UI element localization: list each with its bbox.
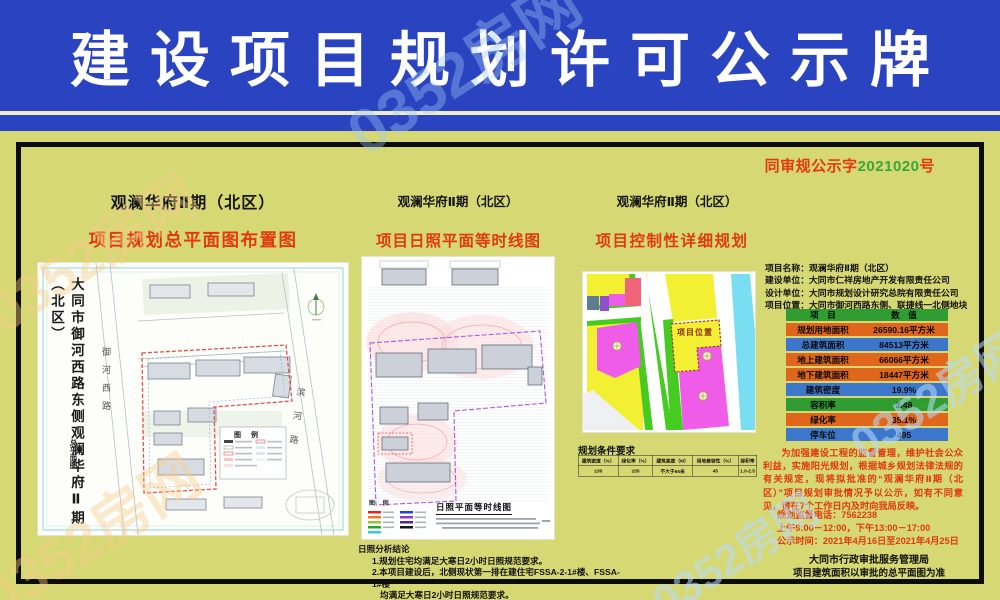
sunshine-legend-title: 图 例 (369, 498, 392, 507)
conditions-value: ≤30 (578, 466, 618, 477)
conditions-header: 建筑高度（M） (653, 455, 693, 466)
project-site-label: 项目位置 (677, 327, 713, 338)
table-row: 容积率 2.48 (786, 398, 948, 411)
board-title: 建设项目规划许可公示牌 (50, 12, 950, 99)
row-value: 2.48 (860, 400, 948, 410)
right-drawing-title: 项目控制性详细规划 (572, 229, 772, 251)
left-drawing-title: 项目规划总平面图布置图 (33, 227, 353, 252)
row-value: 18447平方米 (860, 369, 948, 381)
info-line-designer: 设计单位：大同市规划设计研究总院有限责任公司 (765, 287, 970, 299)
parcel-red (625, 278, 641, 306)
row-label: 容积率 (786, 399, 860, 411)
conditions-value: ≥35 (618, 466, 652, 477)
table-row: 停车位 495 (786, 428, 948, 441)
conditions-header: 绿化率（%） (618, 455, 652, 466)
row-label: 规划用地面积 (786, 324, 860, 336)
footer-note: 项目建筑面积以审批的总平面图为准 (763, 565, 975, 579)
plan-side-subtitle: 总平面图 (68, 439, 79, 469)
office-hours: 上午9:00－12:00，下午13:00－17:00 (777, 520, 977, 534)
conditions-header-row: 建筑密度（%） 绿化率（%） 建筑高度（M） 用地兼容性（%） 容积率 (578, 455, 757, 466)
sunshine-plan-graphic (362, 257, 554, 539)
parcel-slate (587, 296, 599, 310)
conditions-header: 用地兼容性（%） (692, 455, 738, 466)
analysis-line-1: 1.规划住宅均满足大寒日2小时日照规范要求。 (358, 556, 628, 568)
table-row: 地上建筑面积 66066平方米 (786, 353, 948, 366)
project-info: 项目名称：观澜华府Ⅱ期（北区） 建设单位：大同市仁祥房地产开发有限责任公司 设计… (765, 262, 970, 311)
sunshine-analysis: 日照分析结论 1.规划住宅均满足大寒日2小时日照规范要求。 2.本项目建设后，北… (358, 544, 628, 600)
public-notice-paragraph: 为加强建设工程的监督管理，维护社会公众利益，实施阳光规划，根据城乡规划法律法规的… (763, 447, 963, 513)
info-line-builder: 建设单位：大同市仁祥房地产开发有限责任公司 (765, 274, 970, 286)
middle-project-title: 观澜华府Ⅱ期（北区） (358, 191, 558, 210)
row-value: 495 (860, 430, 948, 440)
row-value: 26590.16平方米 (860, 324, 948, 336)
row-label: 地下建筑面积 (786, 369, 860, 381)
site-plan-drawing: 大同市御河西路东侧观澜华府Ⅱ期（北区） 总平面图 御河西路 滨河路 图 例 (38, 263, 348, 535)
approval-prefix: 同审规公示字 (765, 158, 858, 175)
table-row: 总建筑面积 84513平方米 (786, 338, 948, 351)
approval-digits: 2021020 (858, 158, 920, 175)
row-label: 总建筑面积 (786, 339, 860, 351)
notice-board: 建设项目规划许可公示牌 同审规公示字2021020号 观澜华府Ⅱ期（北区） 项目… (0, 0, 1000, 600)
analysis-line-2: 2.本项目建设后，北侧现状第一排在建住宅FSSA-2-1#楼、FSSA-1#楼 (358, 567, 628, 590)
plan-legend-title: 图 例 (234, 430, 262, 440)
row-value: 66066平方米 (860, 354, 948, 366)
row-value: 84513平方米 (860, 339, 948, 351)
conditions-value: 45 (692, 466, 738, 477)
table-row: 绿化率 35.1% (786, 413, 948, 426)
conditions-table: 建筑密度（%） 绿化率（%） 建筑高度（M） 用地兼容性（%） 容积率 ≤30 … (578, 455, 757, 483)
conditions-value-row: ≤30 ≥35 不大于65米 45 1.0-2.5 (578, 466, 757, 477)
conditions-value: 不大于65米 (653, 466, 693, 477)
sunshine-notes (436, 518, 550, 529)
header-divider-blue (0, 115, 1000, 131)
right-project-title: 观澜华府Ⅱ期（北区） (577, 191, 777, 210)
row-label: 地上建筑面积 (786, 354, 860, 366)
main-panel: 同审规公示字2021020号 观澜华府Ⅱ期（北区） 项目规划总平面图布置图 (16, 142, 984, 584)
indicators-table: 项 目 数 值 规划用地面积 26590.16平方米 总建筑面积 84513平方… (786, 309, 948, 443)
parcel-magenta-small (609, 294, 625, 306)
row-label: 停车位 (786, 429, 860, 441)
row-value: 35.1% (860, 415, 948, 425)
row-label: 建筑密度 (786, 384, 860, 396)
sunshine-inner-title: 日照平面等时线图 (436, 501, 512, 515)
indicators-col-item: 项 目 (786, 309, 860, 321)
road-label-west: 御河西路 (100, 347, 113, 419)
parcel-purple (600, 296, 609, 311)
analysis-line-3: 均满足大寒日2小时日照规范要求。 (358, 590, 628, 600)
sunshine-plan-drawing: 日照平面等时线图 图 例 (362, 257, 554, 539)
middle-drawing-title: 项目日照平面等时线图 (356, 229, 561, 251)
analysis-title: 日照分析结论 (358, 544, 628, 556)
zoning-map: 项目位置 (583, 272, 755, 432)
row-label: 绿化率 (786, 414, 860, 426)
issuing-authority: 大同市行政审批服务管理局 (763, 551, 975, 566)
table-row: 规划用地面积 26590.16平方米 (786, 323, 948, 336)
conditions-header: 建筑密度（%） (578, 455, 618, 466)
table-row: 地下建筑面积 18447平方米 (786, 368, 948, 381)
indicators-col-value: 数 值 (860, 309, 948, 321)
left-project-title: 观澜华府Ⅱ期（北区） (33, 189, 353, 213)
board-header: 建设项目规划许可公示牌 (0, 0, 1000, 111)
row-value: 19.9% (860, 385, 948, 395)
zoning-map-graphic (583, 272, 755, 432)
info-line-name: 项目名称：观澜华府Ⅱ期（北区） (765, 262, 970, 274)
approval-suffix: 号 (919, 158, 935, 175)
indicators-header-row: 项 目 数 值 (786, 309, 948, 321)
table-row: 建筑密度 19.9% (786, 383, 948, 396)
supervision-phone: 规划监督电话：7562238 (777, 507, 977, 521)
conditions-value: 1.0-2.5 (738, 466, 756, 477)
conditions-header: 容积率 (738, 455, 756, 466)
plan-side-title: 大同市御河西路东侧观澜华府Ⅱ期（北区） (46, 277, 86, 527)
notice-period: 公示时间：2021年4月16日至2021年4月25日 (777, 533, 977, 547)
approval-number: 同审规公示字2021020号 (765, 155, 935, 176)
